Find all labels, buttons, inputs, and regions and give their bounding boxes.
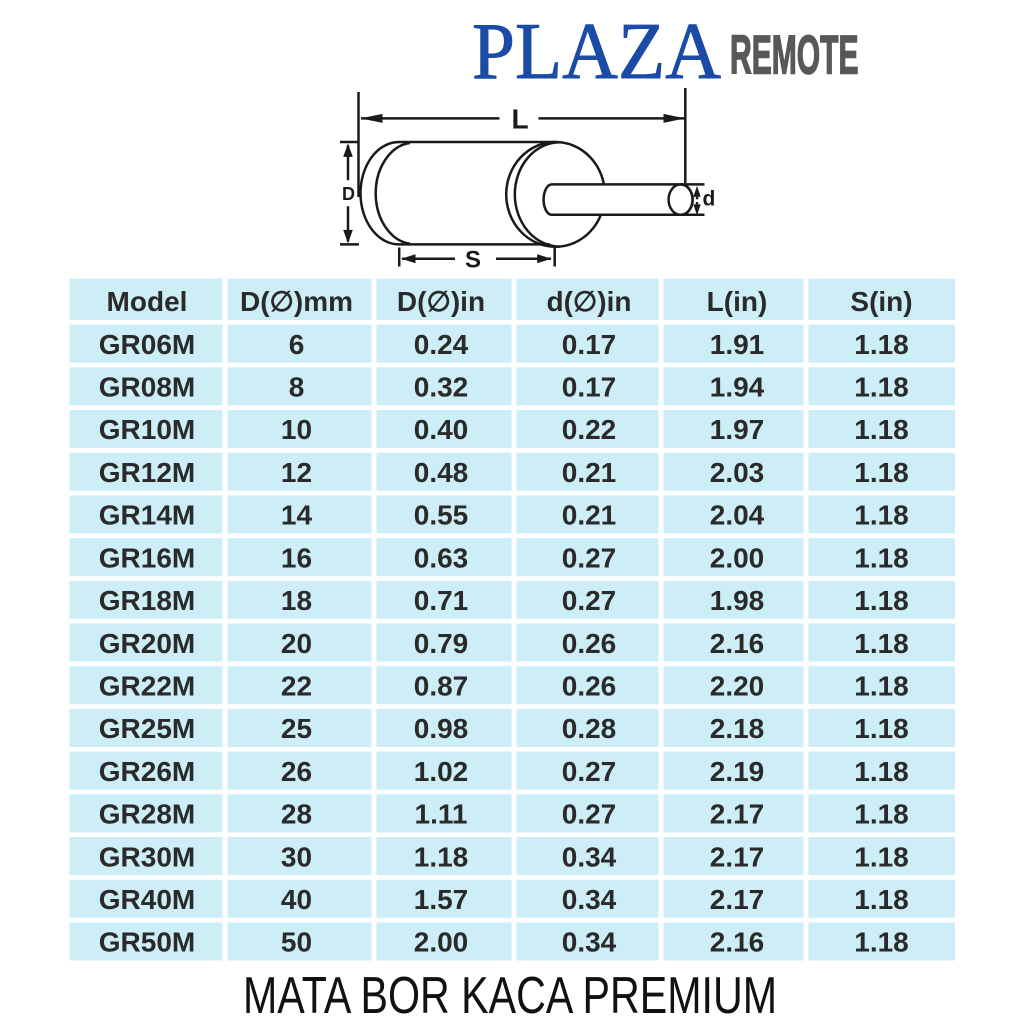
svg-text:2.16: 2.16 (710, 628, 765, 659)
svg-text:12: 12 (281, 457, 312, 488)
svg-text:25: 25 (281, 713, 312, 744)
svg-text:20: 20 (281, 628, 312, 659)
svg-text:0.63: 0.63 (414, 542, 469, 573)
svg-text:0.22: 0.22 (562, 414, 617, 445)
svg-text:16: 16 (281, 542, 312, 573)
svg-text:MATA BOR KACA PREMIUM: MATA BOR KACA PREMIUM (243, 967, 777, 1024)
svg-text:Model: Model (107, 286, 188, 317)
svg-text:1.18: 1.18 (854, 841, 909, 872)
svg-text:1.18: 1.18 (854, 756, 909, 787)
svg-text:GR28M: GR28M (99, 799, 195, 830)
svg-text:26: 26 (281, 756, 312, 787)
svg-text:0.28: 0.28 (562, 713, 617, 744)
svg-text:d: d (703, 188, 716, 211)
svg-text:2.17: 2.17 (710, 884, 765, 915)
svg-text:1.57: 1.57 (414, 884, 469, 915)
svg-text:1.18: 1.18 (854, 457, 909, 488)
svg-text:1.02: 1.02 (414, 756, 469, 787)
svg-text:0.26: 0.26 (562, 628, 617, 659)
svg-text:GR40M: GR40M (99, 884, 195, 915)
svg-text:1.91: 1.91 (710, 329, 765, 360)
svg-text:0.48: 0.48 (414, 457, 469, 488)
svg-text:2.16: 2.16 (710, 927, 765, 958)
svg-text:1.18: 1.18 (854, 671, 909, 702)
svg-text:GR16M: GR16M (99, 542, 195, 573)
svg-text:PLAZA: PLAZA (472, 6, 721, 96)
svg-text:0.79: 0.79 (414, 628, 469, 659)
svg-text:10: 10 (281, 414, 312, 445)
svg-text:S(in): S(in) (850, 286, 912, 317)
svg-text:0.26: 0.26 (562, 671, 617, 702)
svg-text:GR25M: GR25M (99, 713, 195, 744)
svg-text:GR12M: GR12M (99, 457, 195, 488)
svg-text:D(∅)mm: D(∅)mm (240, 286, 353, 317)
svg-text:GR30M: GR30M (99, 841, 195, 872)
svg-text:0.21: 0.21 (562, 457, 617, 488)
svg-text:0.21: 0.21 (562, 500, 617, 531)
svg-text:GR10M: GR10M (99, 414, 195, 445)
svg-text:0.32: 0.32 (414, 372, 469, 403)
svg-text:0.17: 0.17 (562, 329, 617, 360)
svg-text:0.27: 0.27 (562, 756, 617, 787)
svg-text:1.18: 1.18 (854, 884, 909, 915)
svg-text:1.18: 1.18 (414, 841, 469, 872)
svg-text:2.00: 2.00 (710, 542, 765, 573)
svg-text:2.17: 2.17 (710, 841, 765, 872)
svg-text:1.97: 1.97 (710, 414, 765, 445)
svg-text:2.20: 2.20 (710, 671, 765, 702)
svg-text:2.03: 2.03 (710, 457, 765, 488)
svg-text:0.34: 0.34 (562, 841, 617, 872)
svg-text:0.71: 0.71 (414, 585, 469, 616)
svg-text:0.34: 0.34 (562, 927, 617, 958)
svg-text:GR20M: GR20M (99, 628, 195, 659)
svg-text:28: 28 (281, 799, 312, 830)
svg-text:GR18M: GR18M (99, 585, 195, 616)
svg-text:REMOTE: REMOTE (730, 25, 859, 86)
svg-text:GR06M: GR06M (99, 329, 195, 360)
svg-text:6: 6 (289, 329, 305, 360)
svg-text:L: L (511, 103, 528, 134)
svg-text:D: D (342, 184, 355, 204)
svg-text:0.87: 0.87 (414, 671, 469, 702)
svg-text:0.17: 0.17 (562, 372, 617, 403)
svg-text:1.18: 1.18 (854, 500, 909, 531)
svg-text:0.24: 0.24 (414, 329, 469, 360)
svg-text:GR26M: GR26M (99, 756, 195, 787)
svg-text:1.18: 1.18 (854, 927, 909, 958)
svg-text:d(∅)in: d(∅)in (546, 286, 631, 317)
svg-text:2.17: 2.17 (710, 799, 765, 830)
svg-text:1.18: 1.18 (854, 799, 909, 830)
svg-text:2.00: 2.00 (414, 927, 469, 958)
svg-text:0.34: 0.34 (562, 884, 617, 915)
svg-text:8: 8 (289, 372, 305, 403)
svg-text:40: 40 (281, 884, 312, 915)
svg-text:D(∅)in: D(∅)in (397, 286, 485, 317)
svg-text:1.18: 1.18 (854, 372, 909, 403)
svg-text:GR08M: GR08M (99, 372, 195, 403)
svg-text:0.55: 0.55 (414, 500, 469, 531)
svg-text:18: 18 (281, 585, 312, 616)
svg-text:2.04: 2.04 (710, 500, 765, 531)
svg-text:0.40: 0.40 (414, 414, 469, 445)
svg-text:50: 50 (281, 927, 312, 958)
svg-text:GR14M: GR14M (99, 500, 195, 531)
svg-text:S: S (465, 246, 481, 273)
svg-text:1.18: 1.18 (854, 585, 909, 616)
svg-text:2.18: 2.18 (710, 713, 765, 744)
svg-text:0.27: 0.27 (562, 799, 617, 830)
svg-text:22: 22 (281, 671, 312, 702)
svg-text:1.98: 1.98 (710, 585, 765, 616)
svg-text:L(in): L(in) (707, 286, 768, 317)
svg-text:GR22M: GR22M (99, 671, 195, 702)
svg-text:1.94: 1.94 (710, 372, 765, 403)
svg-text:1.18: 1.18 (854, 414, 909, 445)
svg-text:1.11: 1.11 (415, 799, 468, 830)
svg-text:1.18: 1.18 (854, 628, 909, 659)
svg-text:1.18: 1.18 (854, 542, 909, 573)
svg-text:2.19: 2.19 (710, 756, 765, 787)
svg-text:14: 14 (281, 500, 313, 531)
svg-text:0.98: 0.98 (414, 713, 469, 744)
svg-text:1.18: 1.18 (854, 329, 909, 360)
svg-text:30: 30 (281, 841, 312, 872)
svg-text:0.27: 0.27 (562, 542, 617, 573)
svg-text:0.27: 0.27 (562, 585, 617, 616)
svg-text:GR50M: GR50M (99, 927, 195, 958)
svg-text:1.18: 1.18 (854, 713, 909, 744)
